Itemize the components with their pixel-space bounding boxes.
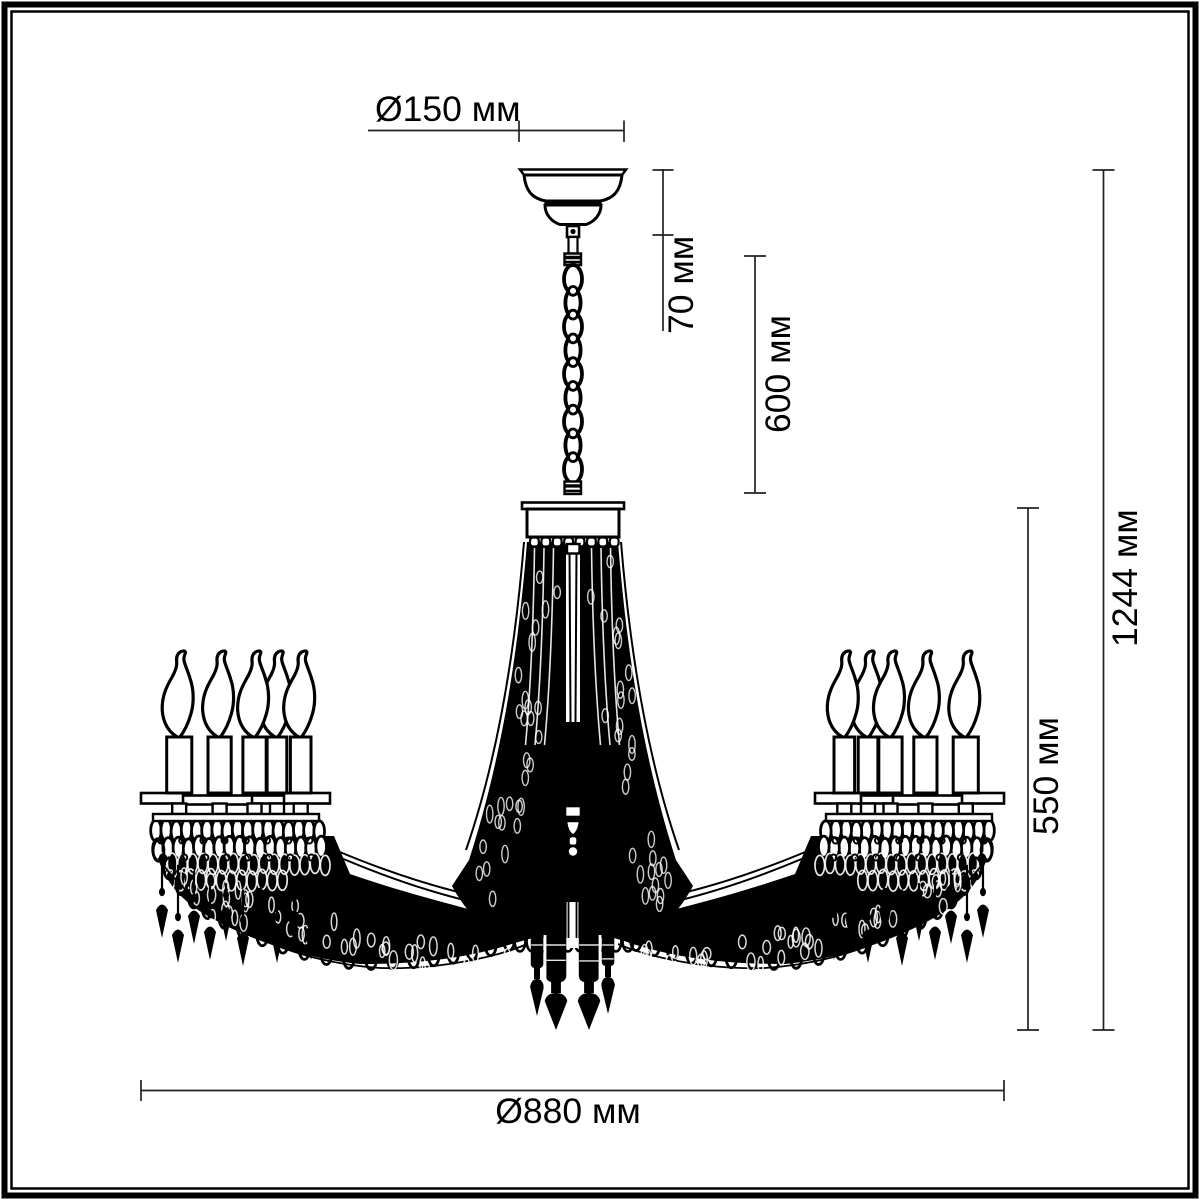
svg-text:Ø880 мм: Ø880 мм [495,1091,641,1131]
svg-text:70 мм: 70 мм [661,236,701,334]
svg-text:1244 мм: 1244 мм [1105,509,1145,647]
svg-text:Ø150 мм: Ø150 мм [375,89,521,129]
svg-text:600 мм: 600 мм [758,315,798,433]
svg-text:550 мм: 550 мм [1026,717,1066,835]
